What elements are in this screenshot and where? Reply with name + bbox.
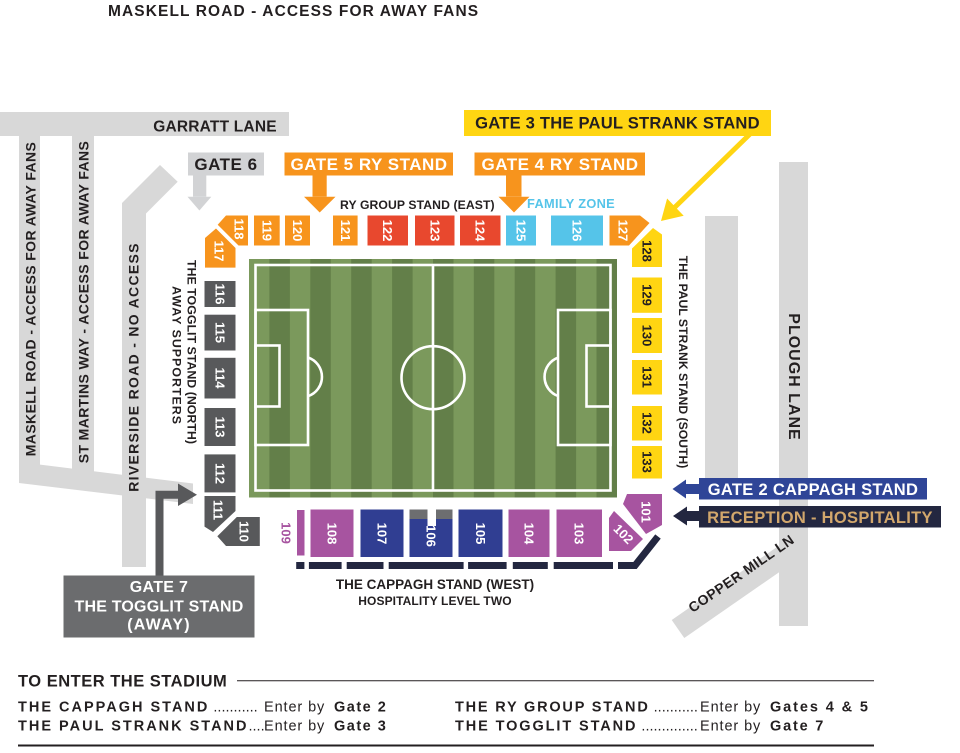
svg-text:118: 118	[232, 219, 247, 240]
svg-text:TO ENTER THE STADIUM: TO ENTER THE STADIUM	[18, 673, 227, 691]
svg-text:THE PAUL STRANK STAND (SOUTH): THE PAUL STRANK STAND (SOUTH)	[676, 256, 690, 469]
svg-text:104: 104	[522, 523, 537, 545]
svg-text:122: 122	[380, 220, 395, 242]
svg-text:114: 114	[213, 368, 228, 390]
svg-text:RECEPTION - HOSPITALITY: RECEPTION - HOSPITALITY	[707, 509, 933, 527]
svg-text:133: 133	[640, 451, 655, 473]
svg-text:MASKELL ROAD - ACCESS FOR AWAY: MASKELL ROAD - ACCESS FOR AWAY FANS	[108, 3, 479, 20]
svg-text:117: 117	[212, 241, 227, 262]
svg-text:FAMILY ZONE: FAMILY ZONE	[527, 196, 615, 211]
svg-text:HOSPITALITY LEVEL TWO: HOSPITALITY LEVEL TWO	[358, 594, 511, 608]
svg-text:105: 105	[473, 523, 488, 545]
svg-text:THE CAPPAGH STAND (WEST): THE CAPPAGH STAND (WEST)	[336, 577, 534, 592]
svg-text:124: 124	[473, 220, 488, 242]
svg-text:THE TOGGLIT STAND (NORTH): THE TOGGLIT STAND (NORTH)	[185, 260, 199, 444]
svg-text:108: 108	[325, 523, 340, 545]
svg-text:MASKELL ROAD - ACCESS FOR AWAY: MASKELL ROAD - ACCESS FOR AWAY FANS	[23, 142, 39, 457]
svg-text:THE TOGGLIT STAND ............: THE TOGGLIT STAND ..............Enter by…	[455, 719, 825, 735]
svg-text:129: 129	[640, 284, 655, 306]
svg-text:128: 128	[640, 240, 655, 262]
svg-text:131: 131	[640, 366, 655, 388]
svg-text:GATE 2 CAPPAGH STAND: GATE 2 CAPPAGH STAND	[708, 481, 918, 499]
svg-text:116: 116	[213, 284, 228, 305]
svg-text:120: 120	[290, 220, 305, 242]
svg-text:115: 115	[213, 322, 228, 343]
svg-text:111: 111	[211, 500, 226, 520]
svg-text:132: 132	[640, 412, 655, 434]
svg-text:AWAY SUPPORTERS: AWAY SUPPORTERS	[169, 286, 183, 425]
svg-text:110: 110	[237, 521, 252, 542]
svg-text:109: 109	[279, 522, 294, 544]
svg-text:THE TOGGLIT STAND: THE TOGGLIT STAND	[74, 599, 243, 616]
svg-text:121: 121	[338, 220, 353, 242]
svg-text:112: 112	[213, 463, 228, 484]
svg-text:103: 103	[572, 523, 587, 545]
svg-text:ST MARTINS WAY - ACCESS FOR AW: ST MARTINS WAY - ACCESS FOR AWAY FANS	[76, 141, 92, 464]
svg-text:113: 113	[213, 417, 228, 438]
svg-text:106: 106	[424, 525, 439, 547]
svg-text:101: 101	[639, 501, 654, 523]
svg-text:GATE 6: GATE 6	[194, 155, 257, 174]
svg-text:RIVERSIDE ROAD - NO ACCESS: RIVERSIDE ROAD - NO ACCESS	[126, 242, 142, 492]
svg-text:GATE 5 RY STAND: GATE 5 RY STAND	[290, 155, 447, 174]
svg-text:GATE 3 THE PAUL STRANK STAND: GATE 3 THE PAUL STRANK STAND	[475, 114, 760, 133]
svg-text:123: 123	[427, 220, 442, 242]
svg-text:THE RY GROUP STAND ...........: THE RY GROUP STAND ...........Enter by G…	[455, 700, 870, 716]
svg-text:THE CAPPAGH STAND ...........E: THE CAPPAGH STAND ...........Enter by Ga…	[18, 700, 387, 716]
svg-text:GARRATT LANE: GARRATT LANE	[153, 119, 277, 136]
svg-text:GATE 4 RY STAND: GATE 4 RY STAND	[481, 155, 638, 174]
svg-text:126: 126	[570, 220, 585, 242]
svg-text:127: 127	[616, 220, 631, 242]
svg-text:THE PAUL STRANK STAND....Enter: THE PAUL STRANK STAND....Enter by Gate 3	[18, 719, 387, 735]
svg-text:PLOUGH LANE: PLOUGH LANE	[785, 313, 802, 440]
svg-text:125: 125	[514, 220, 529, 242]
svg-text:(AWAY): (AWAY)	[127, 617, 191, 634]
svg-text:107: 107	[375, 523, 390, 545]
svg-text:RY GROUP STAND (EAST): RY GROUP STAND (EAST)	[340, 198, 495, 212]
svg-text:119: 119	[260, 220, 275, 241]
svg-text:130: 130	[640, 325, 655, 347]
svg-text:GATE 7: GATE 7	[130, 579, 188, 596]
